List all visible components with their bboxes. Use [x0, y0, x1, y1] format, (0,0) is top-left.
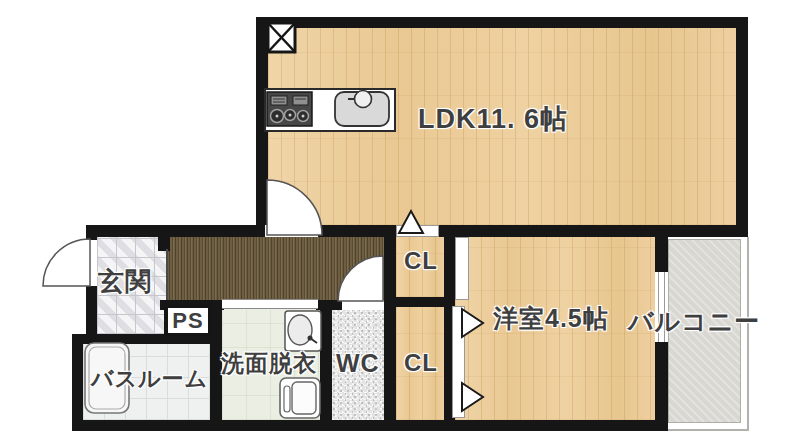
wall-ldk-top: [256, 17, 748, 28]
wall-corridor-right: [384, 225, 396, 431]
closet-lower-label: CL: [404, 349, 438, 377]
entrance-door-swing-arc: [43, 239, 90, 286]
ldk-door-opening: [265, 225, 318, 237]
wc-door-opening: [342, 300, 384, 310]
toilet-label: WC: [336, 349, 380, 378]
wall-bathroom-left: [72, 334, 83, 431]
pipe-space-box: PS: [164, 304, 212, 337]
wall-washroom-wc: [320, 300, 332, 431]
wall-between-closets: [390, 297, 450, 307]
washroom-sliding-door: [222, 299, 318, 309]
kitchen-counter: [264, 88, 396, 132]
ldk-label: LDK11. 6帖: [418, 101, 568, 137]
entrance-door-opening: [86, 240, 97, 286]
wall-ldk-right: [736, 17, 748, 237]
ldk-closet-opening: [396, 225, 439, 237]
balcony-bottom-rail-line: [668, 429, 749, 431]
entrance-step-line: [166, 249, 168, 300]
bathroom-label: バスルーム: [91, 364, 208, 394]
balcony-label: バルコニー: [628, 305, 760, 338]
closet-upper-label: CL: [404, 247, 438, 275]
entrance-label: 玄関: [98, 264, 152, 299]
closet-upper-door-panel: [455, 237, 469, 300]
western-room-label: 洋室4.5帖: [493, 302, 609, 335]
wall-entrance-stub: [158, 225, 170, 251]
corridor-floor: [166, 237, 384, 300]
washroom-label: 洗面脱衣: [221, 348, 317, 379]
wall-bottom: [72, 420, 668, 431]
pipe-space-label: PS: [172, 308, 203, 334]
floor-plan: PS: [0, 0, 800, 442]
closet-lower-door-panel: [452, 306, 465, 418]
